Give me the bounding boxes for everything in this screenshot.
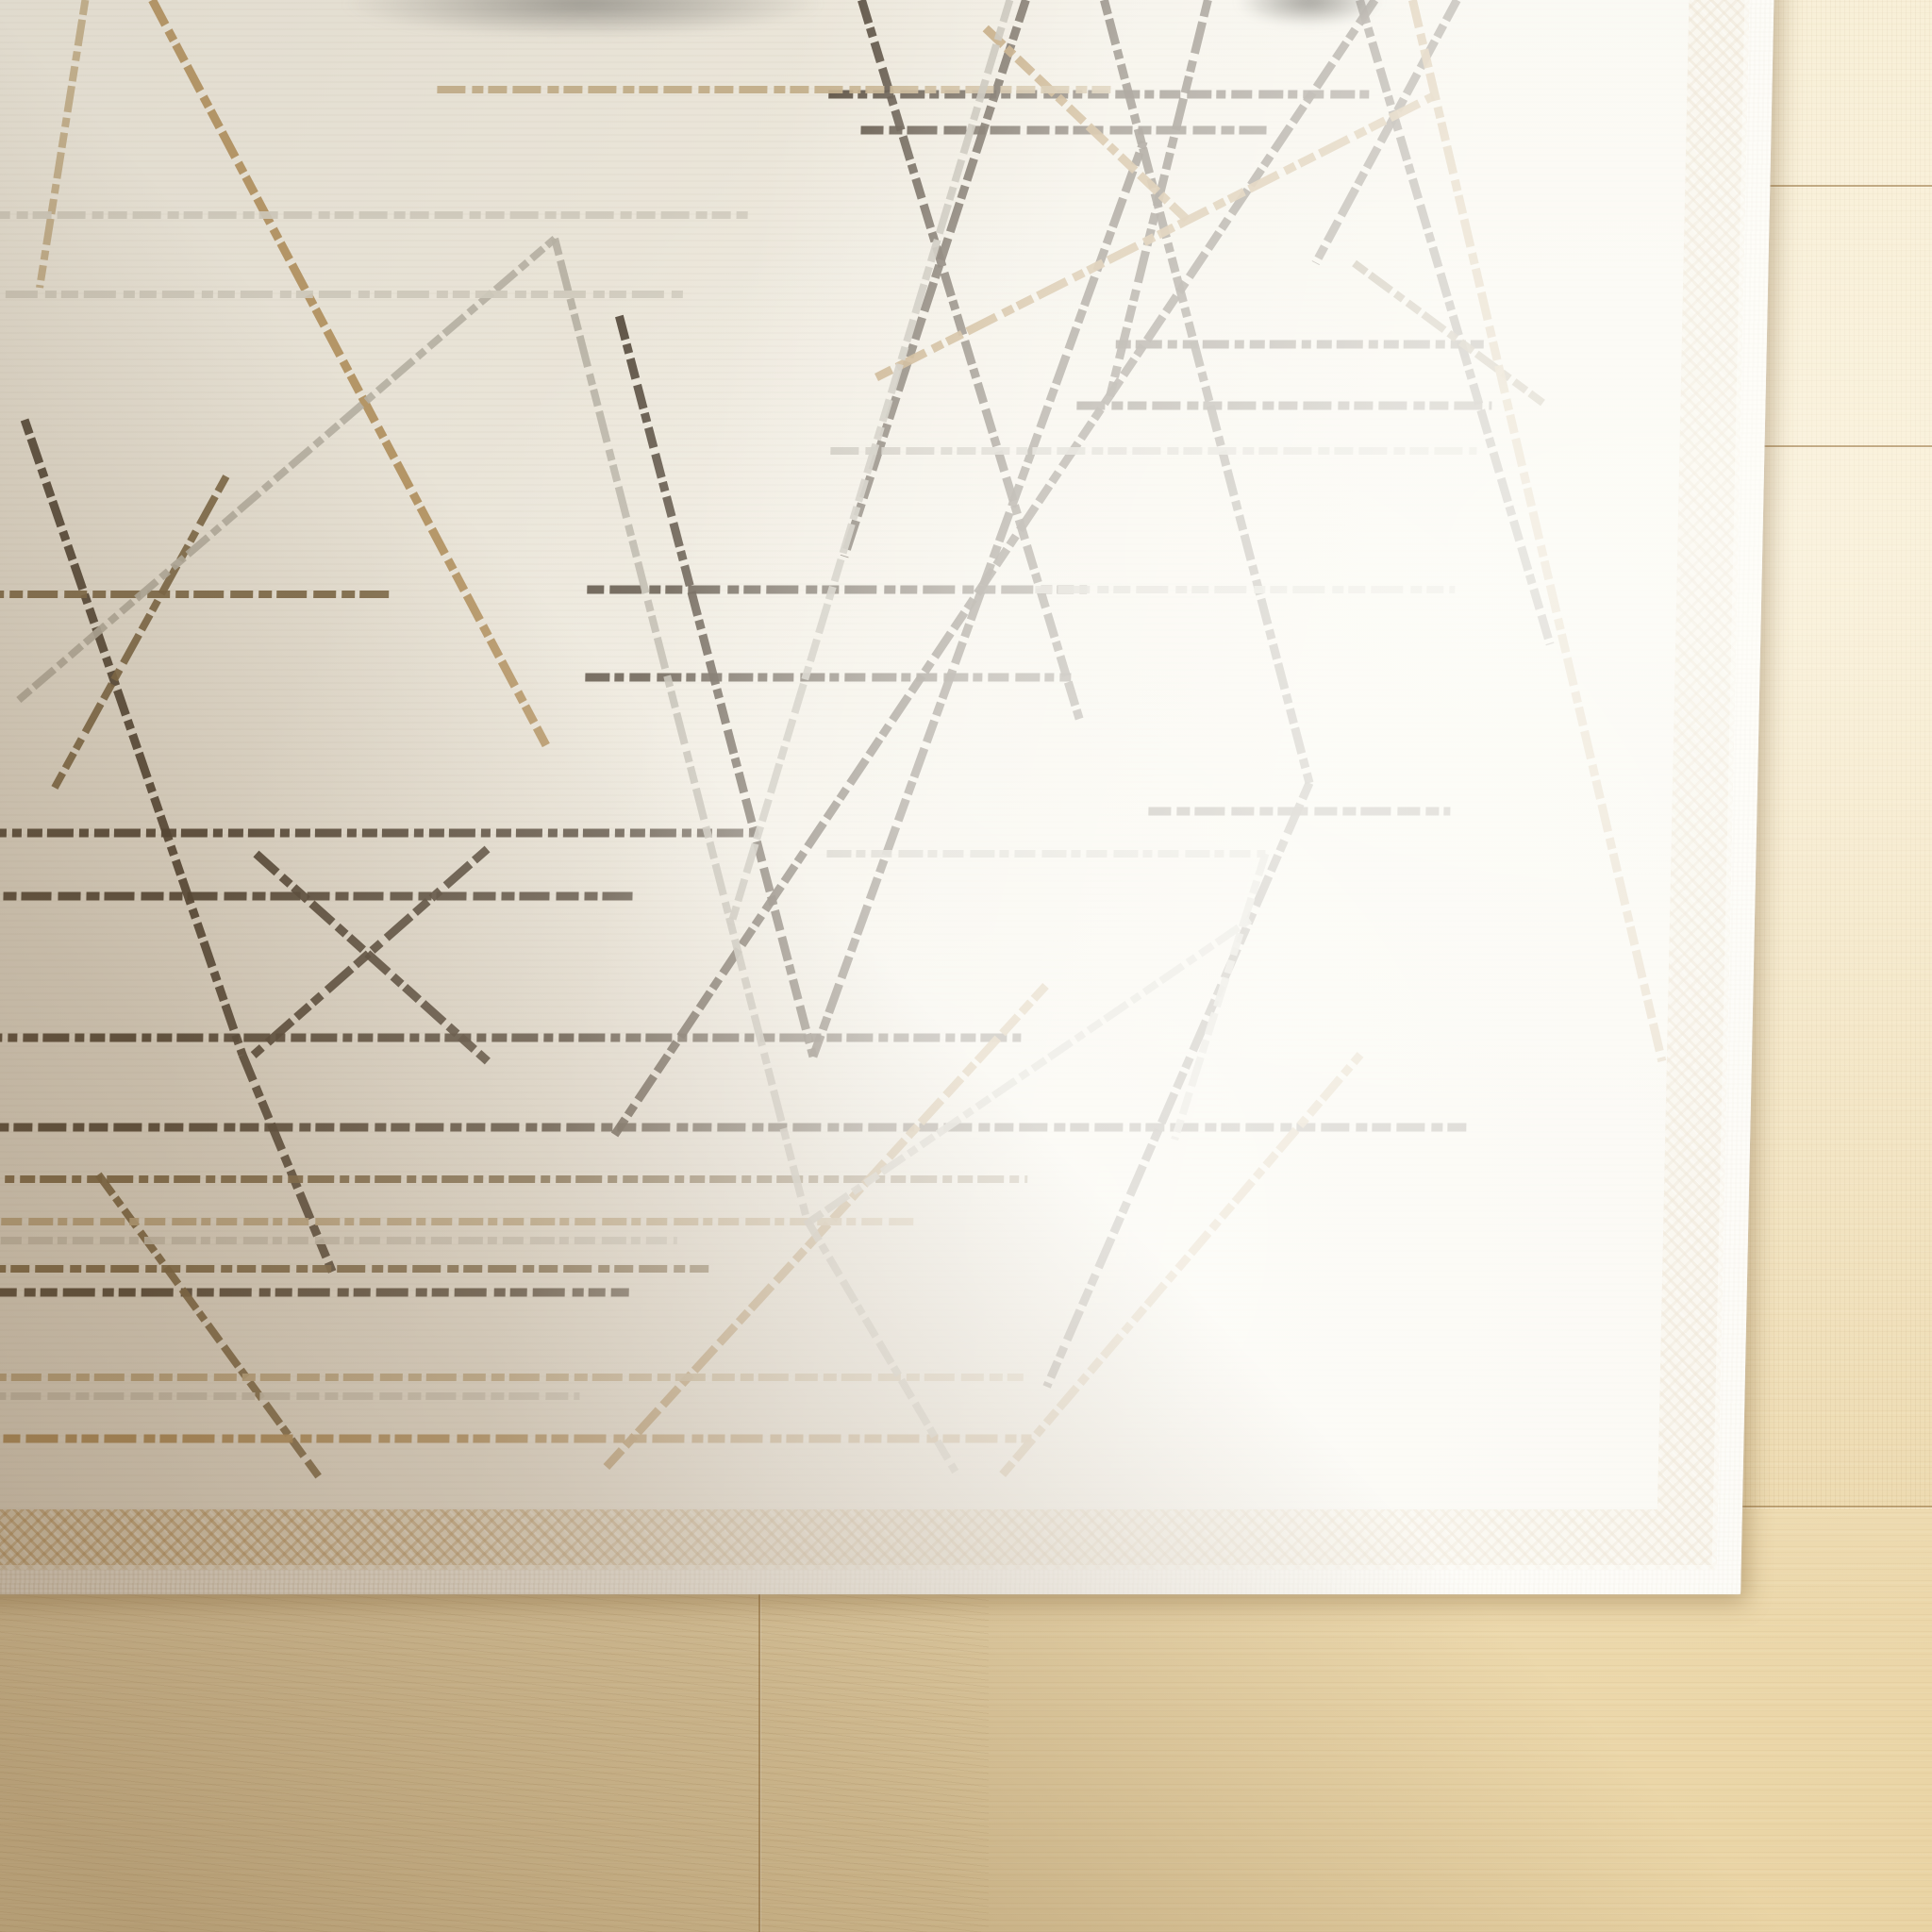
rug-pattern-line [802,1220,961,1472]
rug-field [0,0,1691,1509]
rug-pattern-line [534,239,827,1220]
rug-pattern-line [1088,0,1325,783]
photo-scene [0,0,1932,1932]
rug-pattern-line [813,142,1143,1057]
rug-pattern-line [613,0,1374,1137]
rug-pattern [0,0,1691,1509]
rug-pattern-line [1047,783,1309,1387]
rug-pattern-line [604,316,828,1057]
rug-pattern-line [809,920,1250,1222]
rug-pattern-line [1003,1055,1360,1474]
rug-pattern-line [40,0,85,288]
plank-seam [1721,1506,1932,1507]
rug-pattern-line [1174,854,1265,1140]
area-rug [0,0,1778,1594]
rug-pattern-line [19,239,555,700]
object-shadow [1236,0,1383,26]
rug-pattern-line [607,986,1046,1467]
rug-pattern-line [1391,0,1685,1061]
rug-pattern-line [11,420,256,1055]
rug-pattern-line [1346,0,1563,644]
rug-pattern-line [55,476,226,788]
object-shadow [340,0,827,38]
rug-pattern-line [137,0,562,745]
rug-pattern-line [731,0,1010,924]
rug-border-band [0,0,1753,1570]
rug-pattern-line [1351,263,1545,403]
rug-pattern-line [1316,0,1457,263]
rug-pattern-line [844,0,1025,557]
plank-seam [758,1587,760,1932]
